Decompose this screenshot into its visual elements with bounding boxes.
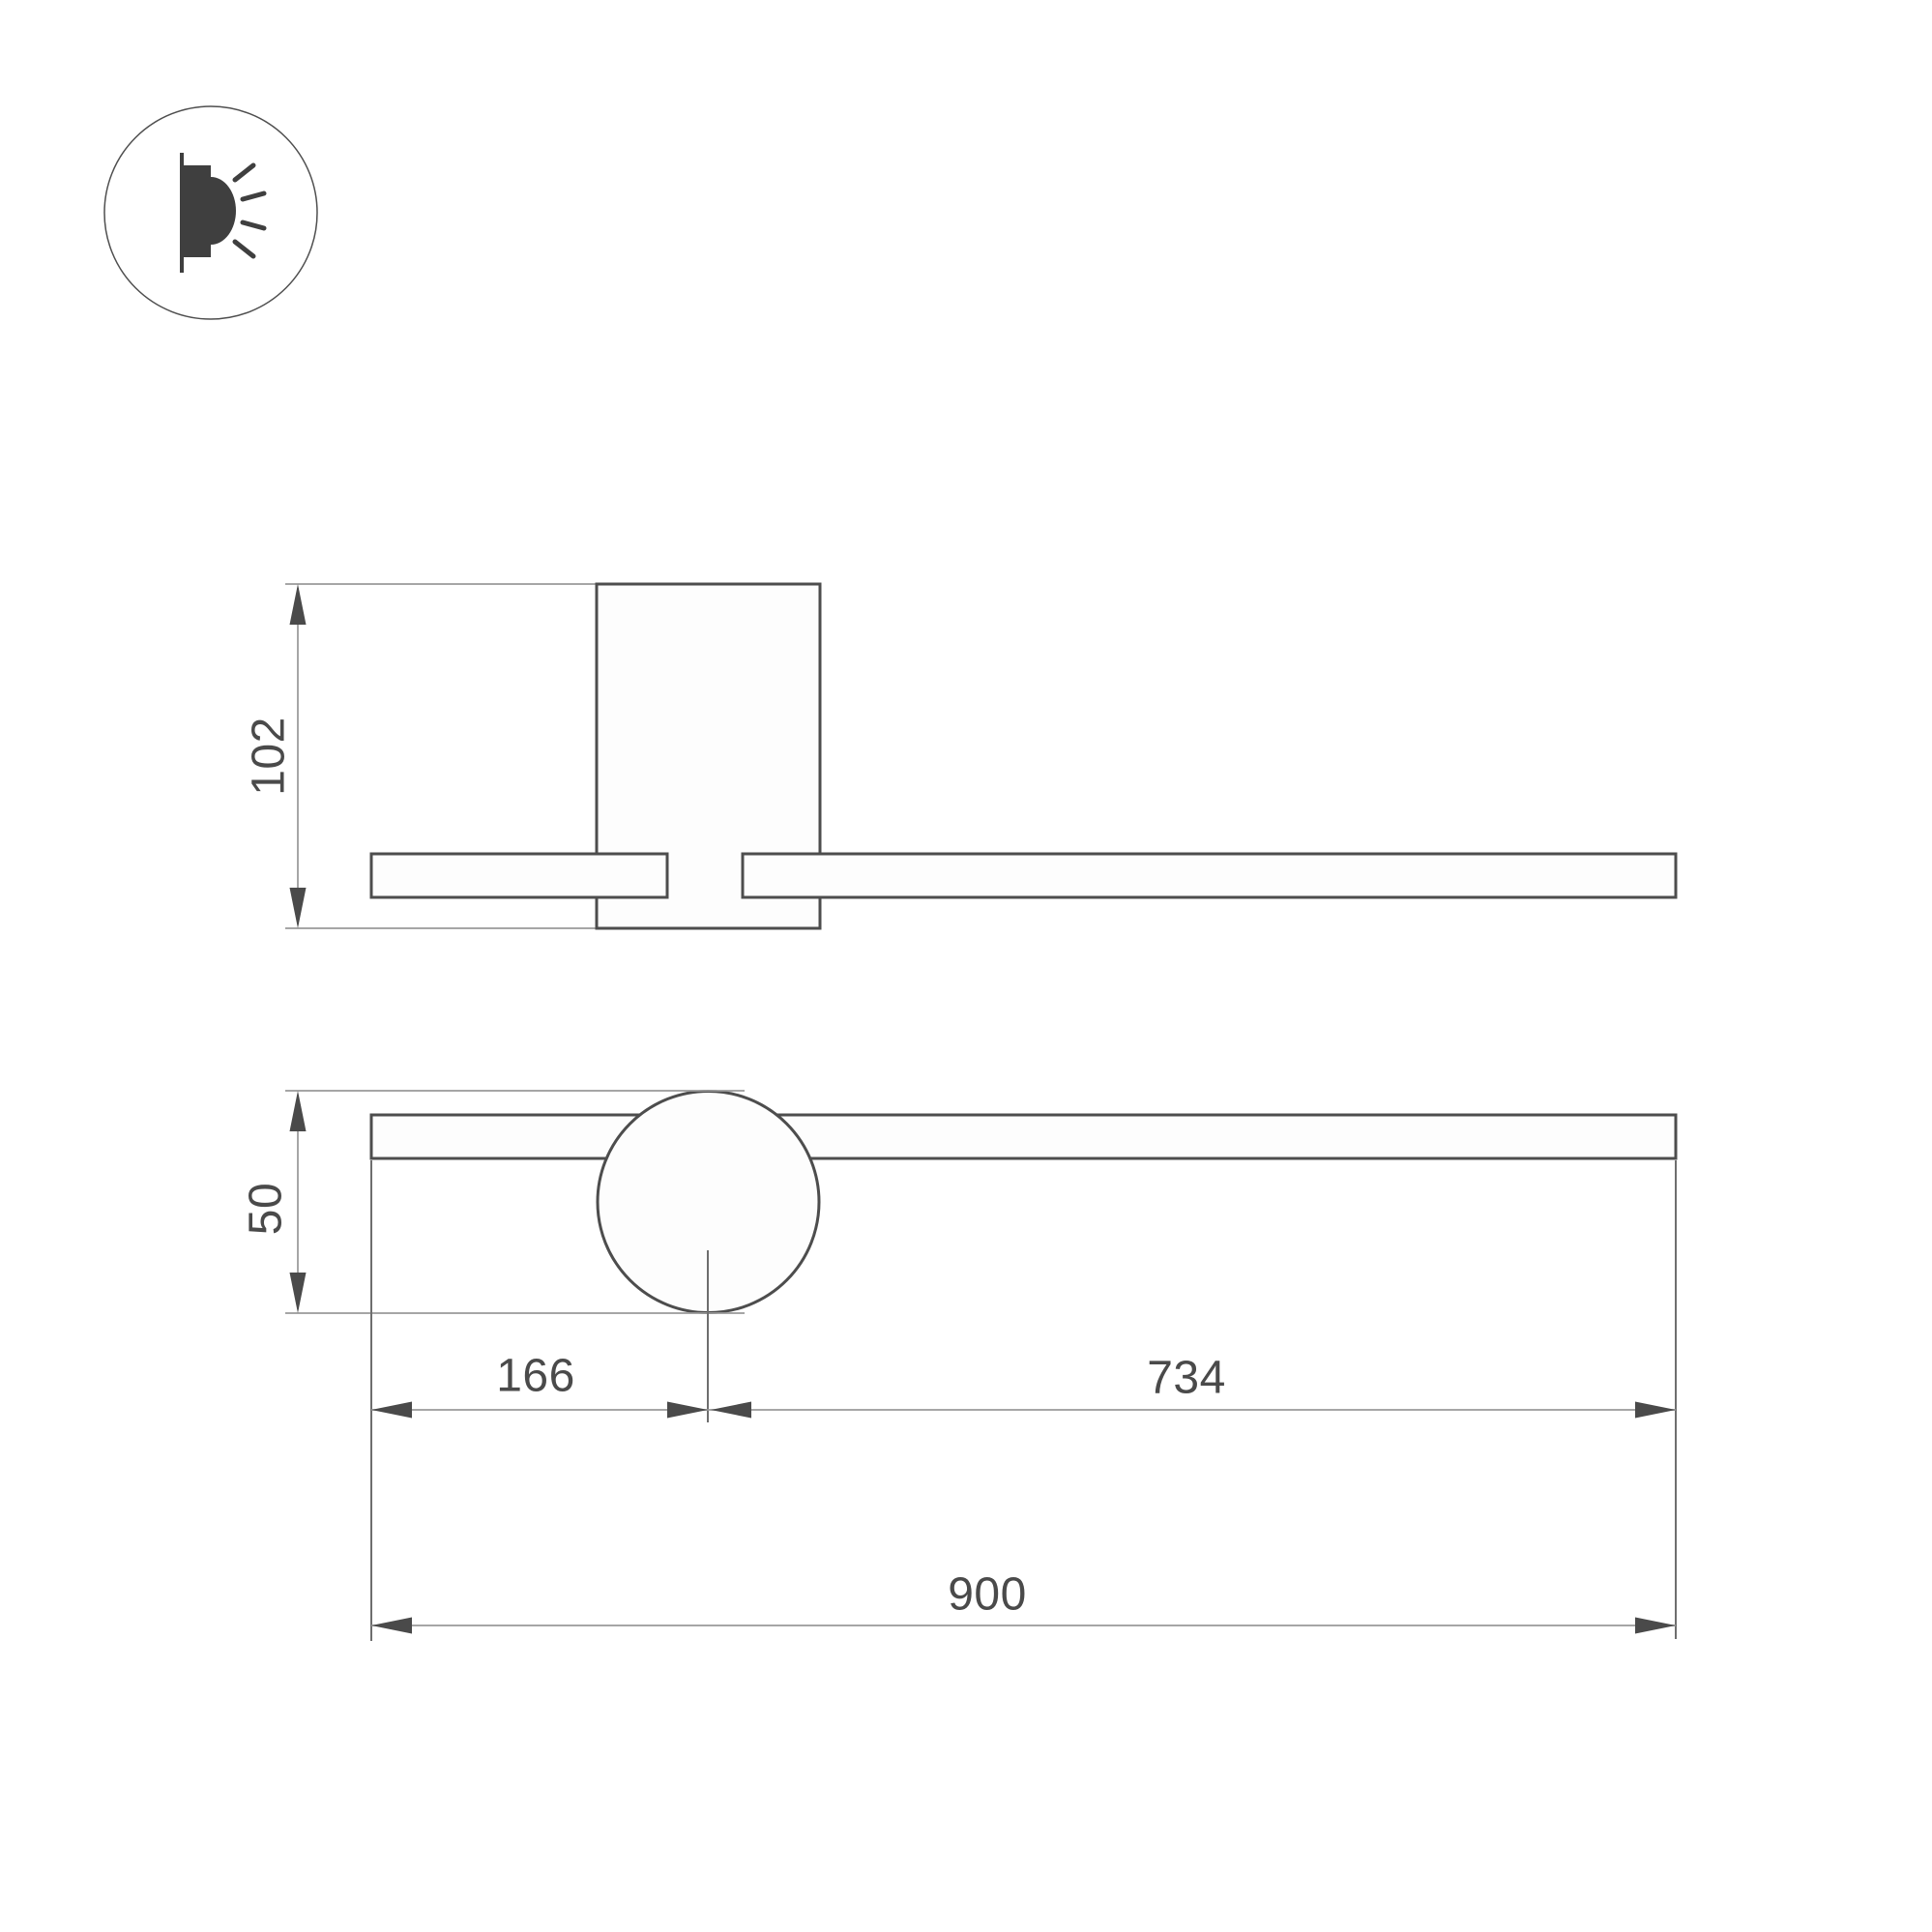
front-view: 50 166 734 900 [241, 1091, 1677, 1641]
icon-lamp-body [184, 165, 211, 257]
dim-label-166: 166 [496, 1351, 575, 1402]
arrow-right-icon [667, 1402, 708, 1419]
arrow-left-icon [371, 1618, 412, 1634]
dim-label-102: 102 [244, 717, 295, 796]
technical-drawing-page: 102 50 [0, 0, 1932, 1932]
dim-label-50: 50 [241, 1183, 292, 1235]
arrow-up-icon [290, 584, 307, 625]
side-bar-left-segment [371, 854, 667, 897]
drawing-svg: 102 50 [0, 0, 1932, 1932]
arrow-down-icon [290, 888, 307, 928]
dimension-166-734: 166 734 [371, 1351, 1676, 1419]
dim-label-900: 900 [948, 1569, 1027, 1621]
dimension-50: 50 [241, 1091, 307, 1313]
arrow-up-icon [290, 1091, 307, 1131]
arrow-left-icon [711, 1402, 751, 1419]
icon-wall-line [180, 153, 184, 273]
arrow-right-icon [1635, 1618, 1676, 1634]
dimension-102: 102 [244, 584, 307, 928]
dim-label-734: 734 [1147, 1353, 1226, 1404]
arrow-down-icon [290, 1273, 307, 1313]
arrow-right-icon [1635, 1402, 1676, 1419]
dimension-900: 900 [371, 1569, 1676, 1634]
side-bar-right-segment [743, 854, 1676, 897]
side-view: 102 [244, 584, 1677, 928]
arrow-left-icon [371, 1402, 412, 1419]
wall-light-direction-icon [104, 106, 317, 319]
front-bar-rect [371, 1115, 1676, 1158]
